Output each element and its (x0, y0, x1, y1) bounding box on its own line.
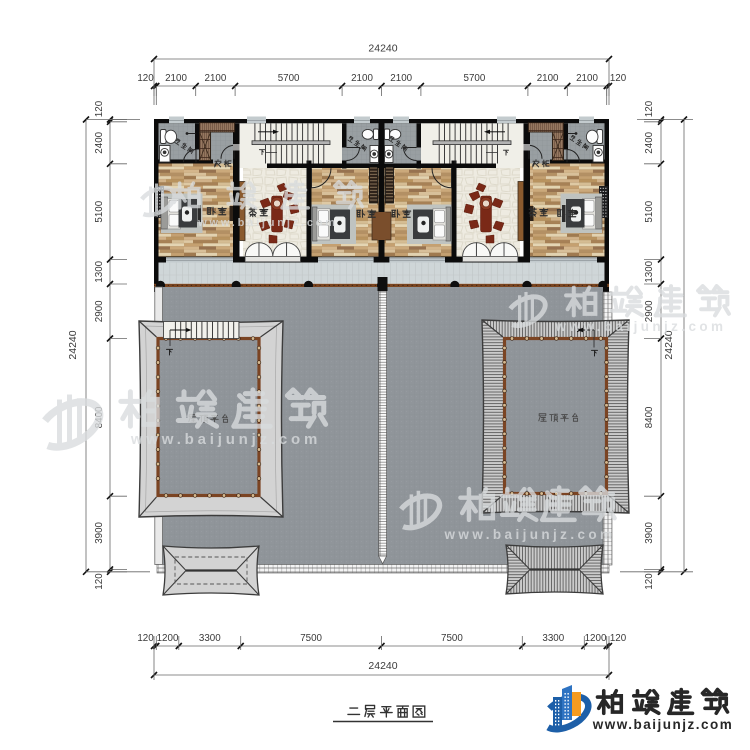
svg-text:2900: 2900 (94, 300, 105, 322)
svg-text:www.baijunjz.com: www.baijunjz.com (444, 527, 616, 542)
svg-text:1300: 1300 (644, 260, 655, 282)
svg-text:5100: 5100 (94, 200, 105, 222)
svg-text:24240: 24240 (368, 43, 397, 55)
svg-text:2100: 2100 (205, 73, 227, 84)
svg-text:2100: 2100 (165, 73, 187, 84)
svg-text:1200: 1200 (585, 633, 607, 644)
svg-text:www.baijunjz.com: www.baijunjz.com (555, 319, 727, 334)
svg-text:24240: 24240 (368, 660, 397, 672)
svg-text:120: 120 (644, 100, 655, 117)
svg-text:120: 120 (137, 633, 154, 644)
svg-text:5100: 5100 (644, 200, 655, 222)
svg-text:120: 120 (94, 100, 105, 117)
svg-text:120: 120 (610, 633, 627, 644)
svg-text:7500: 7500 (441, 633, 463, 644)
svg-text:1200: 1200 (157, 633, 179, 644)
svg-text:8400: 8400 (644, 406, 655, 428)
svg-text:24240: 24240 (67, 330, 79, 359)
svg-text:3300: 3300 (542, 633, 564, 644)
svg-text:2100: 2100 (576, 73, 598, 84)
svg-text:120: 120 (137, 73, 154, 84)
svg-text:3900: 3900 (644, 521, 655, 543)
svg-text:2400: 2400 (94, 131, 105, 153)
svg-text:1300: 1300 (94, 260, 105, 282)
svg-text:5700: 5700 (464, 73, 486, 84)
svg-text:3900: 3900 (94, 521, 105, 543)
svg-text:2100: 2100 (351, 73, 373, 84)
svg-text:2400: 2400 (644, 131, 655, 153)
svg-text:120: 120 (610, 73, 627, 84)
svg-text:www.baijunjz.com: www.baijunjz.com (592, 717, 734, 732)
svg-text:24240: 24240 (663, 330, 675, 359)
svg-text:2100: 2100 (390, 73, 412, 84)
svg-text:2100: 2100 (537, 73, 559, 84)
svg-text:120: 120 (644, 573, 655, 590)
svg-text:5700: 5700 (278, 73, 300, 84)
svg-text:www.baijunjz.com: www.baijunjz.com (197, 217, 338, 229)
svg-text:120: 120 (94, 573, 105, 590)
svg-text:3300: 3300 (199, 633, 221, 644)
svg-text:7500: 7500 (300, 633, 322, 644)
svg-text:www.baijunjz.com: www.baijunjz.com (130, 431, 321, 448)
